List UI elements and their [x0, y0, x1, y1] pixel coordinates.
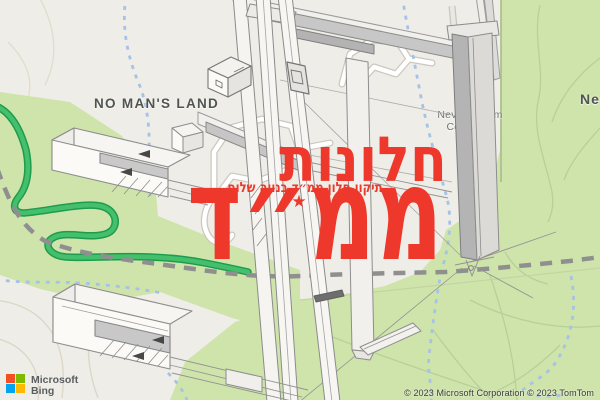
watermark-title-line2: ממ״ד	[187, 138, 443, 290]
map-attribution: © 2023 Microsoft Corporation © 2023 TomT…	[404, 388, 594, 398]
bing-logo[interactable]: Microsoft Bing	[6, 374, 78, 397]
watermark-overlay: תיקון חלון ממ״ד בנווה שלום חלונות ממ״ד ★	[0, 0, 600, 400]
bing-logo-text-line2: Bing	[31, 386, 78, 397]
watermark-star-icon: ★	[291, 192, 306, 212]
microsoft-logo-icon	[6, 374, 25, 393]
bing-map-canvas[interactable]: NO MAN'S LAND Neve Shalom Cemetery Ne	[0, 0, 600, 400]
